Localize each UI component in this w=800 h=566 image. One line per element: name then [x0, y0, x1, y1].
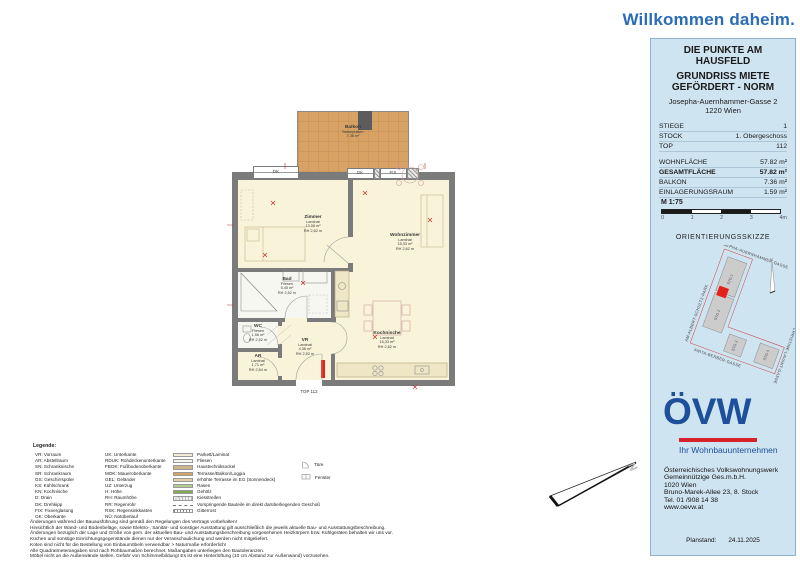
scale-bar-block: M 1:75 01234m [661, 199, 787, 221]
swatch-kiesstreifen [173, 496, 193, 500]
scale-label: M 1:75 [661, 199, 787, 206]
footnote-line: Möbel nicht an die Außenwände stellen. G… [30, 554, 630, 560]
swatch-rasen [173, 484, 193, 488]
plan-type-title: GRUNDRISS MIETE GEFÖRDERT - NORM [651, 71, 795, 93]
table-row: WOHNFLÄCHE57.82 m² [659, 158, 787, 168]
legend-symbol-fenster: Fenster [301, 473, 331, 481]
room-label-balkon: BalkonBetonplatten7,36 m² [342, 125, 363, 139]
floor-plan: DK DK FIX TOP 112 [225, 105, 460, 405]
company-website: www.oevw.at [664, 504, 778, 511]
table-row: STIEGE1 [659, 122, 787, 132]
legend-title: Legende: [33, 443, 363, 449]
legend-swatches: Parkett/Laminat Fliesen Haustechniksocke… [173, 452, 363, 514]
room-label-bad: BadFliesen5,45 m²RH 2,52 m [278, 277, 296, 295]
table-row: BALKON7.36 m² [659, 178, 787, 188]
room-label-wohnzimmer: WohnzimmerLaminat15,33 m²RH 2,62 m [390, 233, 420, 251]
company-address: Österreichisches Volkswohnungswerk Gemei… [664, 467, 778, 511]
north-arrow-plan: N [538, 452, 643, 510]
unit-info-table: STIEGE1 STOCK1. Obergeschoss TOP112 WOHN… [659, 122, 787, 198]
logo-tagline: Ihr Wohnbauunternehmen [679, 445, 778, 455]
orientation-title: ORIENTIERUNGSSKIZZE [651, 234, 795, 241]
north-letter: N [625, 461, 638, 472]
table-row: TOP112 [659, 142, 787, 152]
room-label-kochnische: KochnischeLaminat16,33 m²RH 2,62 m [373, 331, 400, 349]
logo-red-bar [679, 438, 757, 442]
footnotes: Änderungen während der Bauausführung sin… [30, 520, 630, 560]
orientation-sketch: STG 1 STG 2 STG 3 STG 4 JOSEPHA-AUERNHAM… [653, 245, 795, 393]
plan-date: Planstand:24.11.2025 [651, 537, 795, 544]
swatch-gitterrost [173, 509, 193, 513]
swatch-sonnendeck [173, 478, 193, 482]
scale-bar [661, 209, 781, 214]
scale-ticks: 01234m [661, 215, 787, 221]
legend-symbol-tuere: Türe [301, 460, 323, 469]
swatch-haustechniksockel [173, 465, 193, 469]
project-address: Josepha-Auernhammer-Gasse 21220 Wien [651, 98, 795, 115]
swatch-parkett [173, 453, 193, 457]
title-block-panel: DIE PUNKTE AM HAUSFELD GRUNDRISS MIETE G… [650, 38, 796, 556]
swatch-gehoelz [173, 490, 193, 494]
legend-column-1: VR: VorraumAR: AbstellraumSN: Schranknis… [35, 452, 101, 520]
ovw-logo: ÖVW [663, 391, 751, 433]
window-icon [301, 473, 311, 481]
project-title: DIE PUNKTE AM HAUSFELD [651, 45, 795, 67]
street-label: AM-ALBERT-SCHULTZ-PARK [684, 284, 709, 343]
legend: Legende: VR: VorraumAR: AbstellraumSN: S… [33, 443, 363, 452]
swatch-terrasse [173, 472, 193, 476]
room-label-wc: WCFliesen1,56 m²RH 2,52 m [249, 324, 267, 342]
table-row-total: GESAMTFLÄCHE57.82 m² [659, 168, 787, 178]
project-title-block: DIE PUNKTE AM HAUSFELD GRUNDRISS MIETE G… [651, 45, 795, 115]
room-label-ar: ARLaminat1,71 m²RH 2,54 m [249, 354, 267, 372]
welcome-headline: Willkommen daheim. [622, 10, 795, 30]
swatch-fliesen [173, 459, 193, 463]
svg-text:N: N [770, 257, 773, 262]
room-label-zimmer: ZimmerLaminat13,08 m²RH 2,62 m [304, 215, 322, 233]
swatch-vorspringende-bauteile [173, 505, 193, 506]
table-row: STOCK1. Obergeschoss [659, 132, 787, 142]
room-label-vr: VRLaminat4,36 m²RH 2,52 m [296, 338, 314, 356]
door-icon [301, 460, 310, 469]
table-row: EINLAGERUNGSRAUM1.59 m² [659, 188, 787, 198]
